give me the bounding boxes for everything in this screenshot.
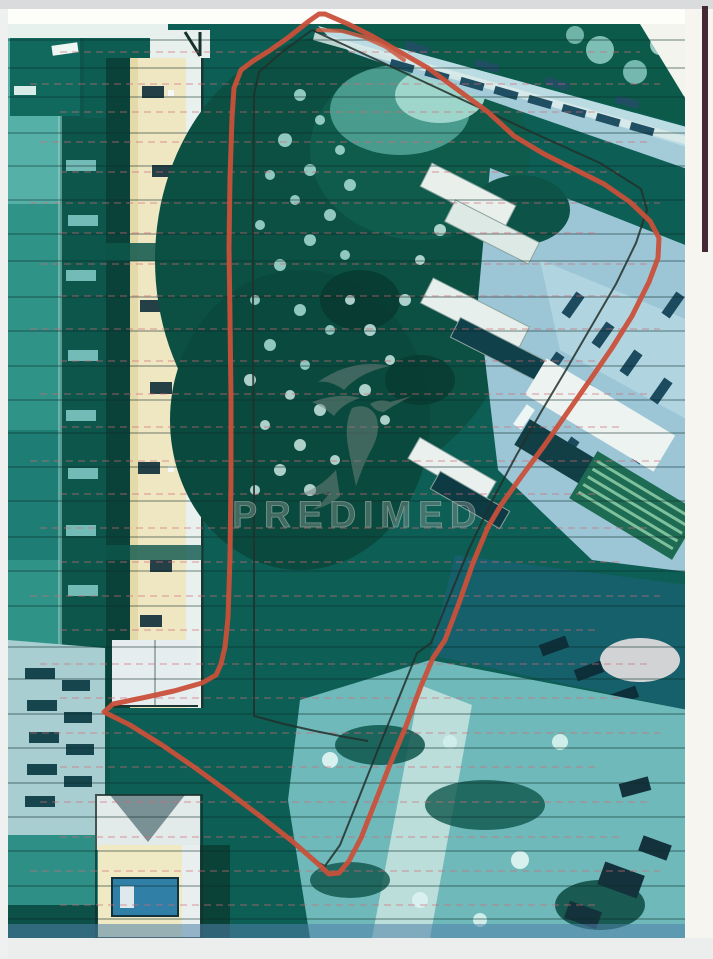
- bottom-right-ground: [288, 660, 688, 938]
- watermark-brand-text: PREDIMED: [232, 494, 483, 535]
- aerial-photo-scan: PREDIMED: [0, 0, 713, 959]
- scanned-aerial-document: PREDIMED: [0, 0, 713, 959]
- bottom-left-parking: [8, 640, 105, 938]
